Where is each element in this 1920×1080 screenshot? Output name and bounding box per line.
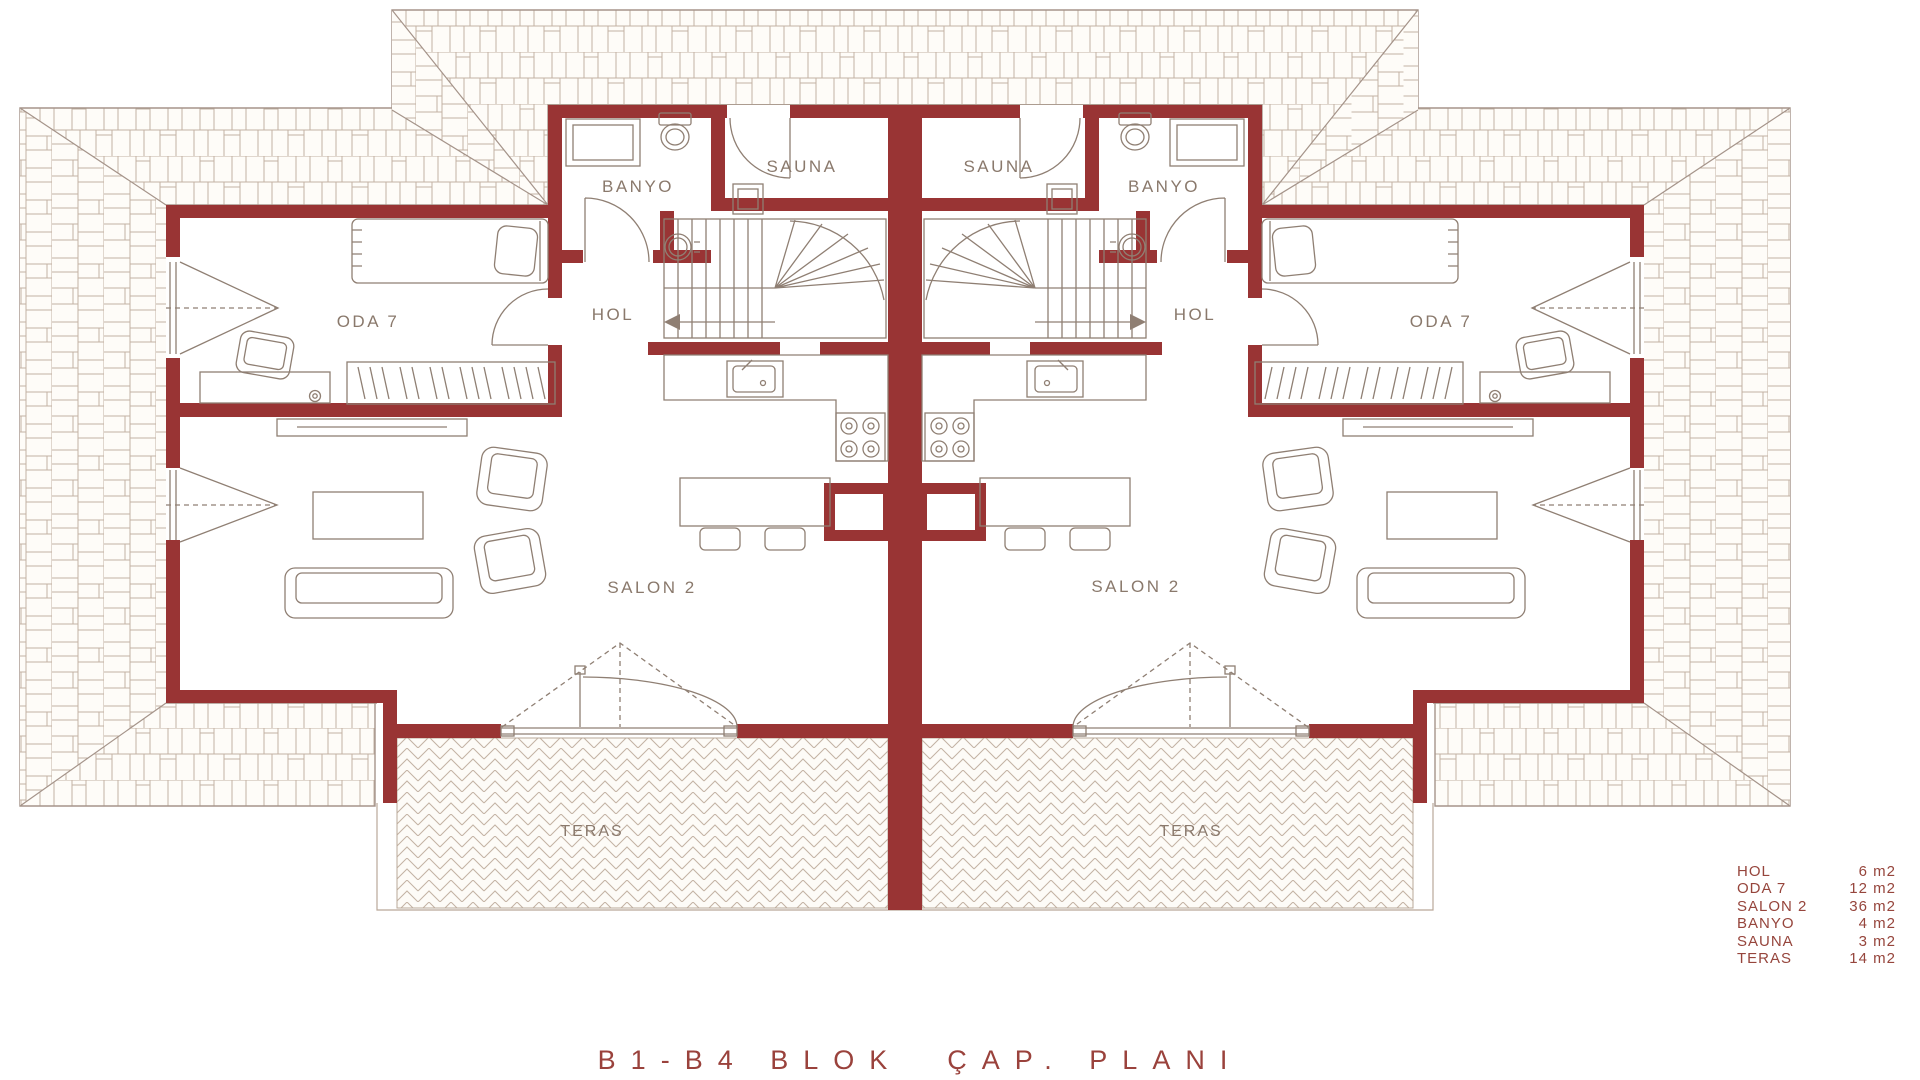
room-label-sauna-left: SAUNA (766, 157, 837, 176)
legend-name-banyo: BANYO (1737, 915, 1795, 932)
floor-plan-page: BANYO SAUNA HOL ODA 7 SALON 2 TERAS BANY… (0, 0, 1920, 1080)
room-label-hol-left: HOL (592, 305, 634, 324)
floor-plan-canvas: BANYO SAUNA HOL ODA 7 SALON 2 TERAS BANY… (0, 0, 1920, 1080)
room-label-sauna-right: SAUNA (963, 157, 1034, 176)
legend-name-teras: TERAS (1737, 950, 1792, 967)
legend-area-oda: 12 m2 (1849, 880, 1896, 897)
room-label-salon-left: SALON 2 (607, 578, 696, 597)
legend-area-banyo: 4 m2 (1859, 915, 1896, 932)
legend-area-hol: 6 m2 (1859, 863, 1896, 880)
legend-area-teras: 14 m2 (1849, 950, 1896, 967)
room-label-salon-right: SALON 2 (1091, 577, 1180, 596)
legend-name-hol: HOL (1737, 863, 1771, 880)
legend-name-salon: SALON 2 (1737, 898, 1807, 915)
room-label-teras-right: TERAS (1159, 823, 1222, 840)
roof-right-slope (1644, 108, 1790, 806)
room-label-oda-right: ODA 7 (1410, 312, 1473, 331)
legend-area-sauna: 3 m2 (1859, 933, 1896, 950)
room-label-banyo-left: BANYO (602, 177, 674, 196)
legend-area-salon: 36 m2 (1849, 898, 1896, 915)
room-label-oda-left: ODA 7 (337, 312, 400, 331)
legend-name-sauna: SAUNA (1737, 933, 1794, 950)
room-label-teras-left: TERAS (560, 823, 623, 840)
room-label-hol-right: HOL (1174, 305, 1216, 324)
plan-title: B1-B4 BLOK ÇAP. PLANI (598, 1045, 1243, 1075)
room-label-banyo-right: BANYO (1128, 177, 1200, 196)
legend-name-oda: ODA 7 (1737, 880, 1786, 897)
roof-left-slope (20, 108, 166, 806)
